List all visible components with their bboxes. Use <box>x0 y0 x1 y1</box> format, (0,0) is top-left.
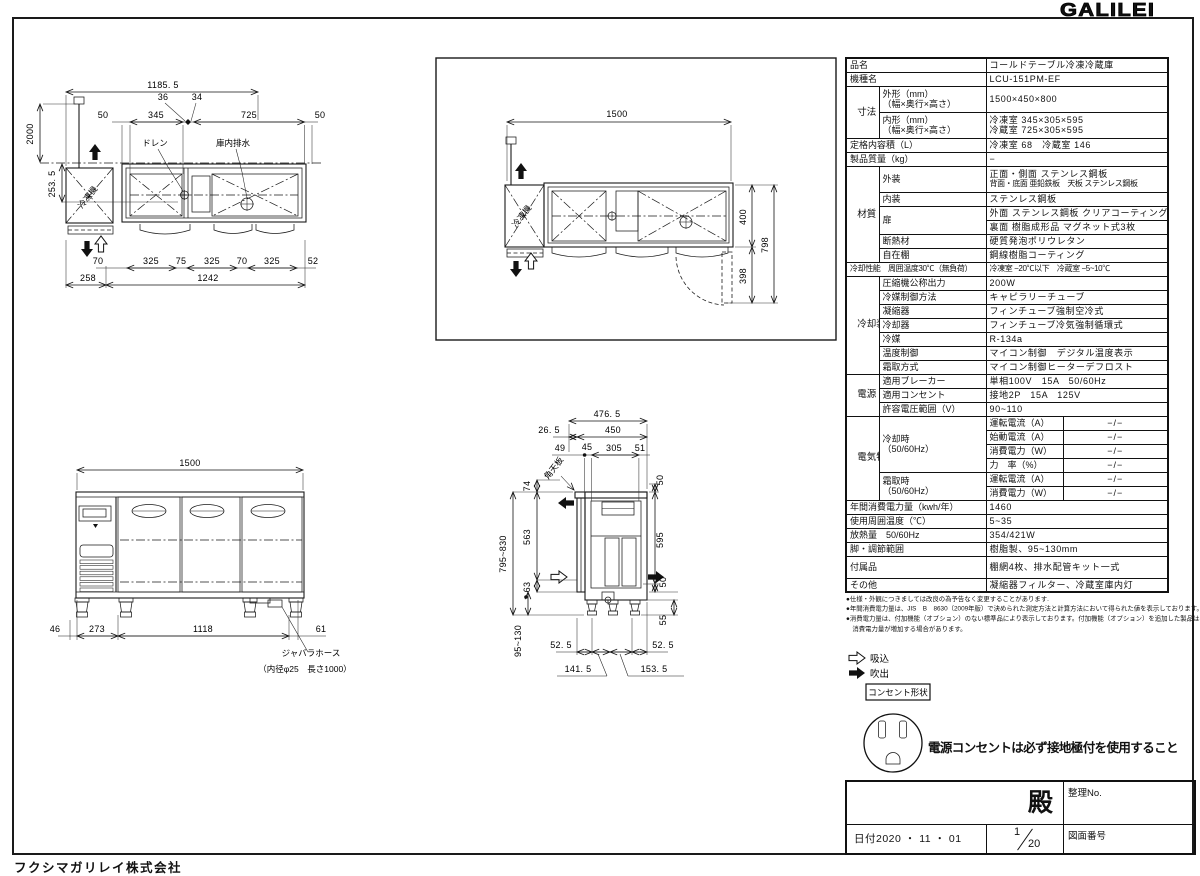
power-outlet-diagram <box>864 714 922 772</box>
spec-label: 冷却器 <box>879 318 986 332</box>
dim-label: 325 <box>204 256 220 266</box>
dim-label: 49 <box>555 443 566 453</box>
dim-label: 34 <box>192 92 203 102</box>
dim-label: 595 <box>655 532 665 548</box>
dim-label: 61 <box>316 624 327 634</box>
spec-label: 許容電圧範囲（V） <box>879 402 986 416</box>
spec-value: R-134a <box>986 332 1168 346</box>
dim-label: 50 <box>658 577 668 588</box>
spec-value: 棚網4枚、排水配管キット一式 <box>986 556 1168 578</box>
dim-label: 36 <box>158 92 169 102</box>
dim-label: 798 <box>760 237 770 253</box>
blowout-arrow-icon <box>81 241 93 257</box>
top-view-drawing: 冷凍機 1500 400 398 798 <box>436 58 836 340</box>
spec-label: 使用周囲温度（℃） <box>846 514 986 528</box>
dim-label: 45 <box>582 442 593 452</box>
intake-label: 吸込 <box>870 654 890 665</box>
spec-value: −/− <box>1063 444 1168 458</box>
title-block: 殿 整理No. 日付2020 ・ 11 ・ 01 1 20 図面番号 <box>845 780 1196 855</box>
dim-label: 153. 5 <box>641 664 668 674</box>
freezer-unit-label: 冷凍機 <box>76 184 100 211</box>
blowout-arrow-icon <box>89 144 101 160</box>
spec-value: コールドテーブル冷凍冷蔵庫 <box>986 58 1168 72</box>
dim-label: 52 <box>308 256 319 266</box>
spec-value: 単相100V 15A 50/60Hz <box>986 374 1168 388</box>
dim-label: 258 <box>80 273 96 283</box>
spec-label: 霜取時（50/60Hz） <box>879 472 986 500</box>
spec-value: −/− <box>1063 486 1168 500</box>
blowout-label: 吹出 <box>870 668 889 680</box>
dim-label: 52. 5 <box>652 640 674 650</box>
spec-label: 付属品 <box>846 556 986 578</box>
blowout-arrow-icon <box>515 163 527 179</box>
dim-label: 1185. 5 <box>147 80 178 90</box>
spec-label: 適用コンセント <box>879 388 986 402</box>
dim-label: 345 <box>148 110 164 120</box>
dim-label: 398 <box>738 268 748 284</box>
spec-label: 扉 <box>879 206 986 234</box>
spec-value: 5~35 <box>986 514 1168 528</box>
spec-table: 品名コールドテーブル冷凍冷蔵庫 機種名LCU-151PM-EF 寸法 外形（mm… <box>845 57 1169 593</box>
spec-label: 機種名 <box>846 72 986 86</box>
spec-value: −/− <box>1063 472 1168 486</box>
dim-label: 305 <box>606 443 622 453</box>
spec-label: 冷媒制御方法 <box>879 290 986 304</box>
spec-label: 定格内容積（L） <box>846 138 986 152</box>
hose-spec-label: （内径φ25 長さ1000） <box>258 664 351 674</box>
spec-value: 200W <box>986 276 1168 290</box>
spec-sublabel: 消費電力（W） <box>986 444 1063 458</box>
spec-value: キャピラリーチューブ <box>986 290 1168 304</box>
spec-value: −/− <box>1063 458 1168 472</box>
spec-value: −/− <box>1063 416 1168 430</box>
dim-label: 725 <box>241 110 257 120</box>
dim-label: 70 <box>93 256 104 266</box>
spec-value: 凝縮器フィルター、冷蔵室庫内灯 <box>986 578 1168 592</box>
note-line: 消費電力量が増加する場合があります。 <box>846 624 1196 634</box>
model-number: LCU-151PM-EF <box>986 72 1168 86</box>
blowout-arrow-icon <box>510 261 522 277</box>
drain-label: ドレン <box>142 138 168 148</box>
blowout-arrow-icon <box>558 497 574 509</box>
date-cell: 日付2020 ・ 11 ・ 01 <box>847 825 987 854</box>
intake-arrow-icon <box>849 652 865 664</box>
dim-label: 1118 <box>193 624 213 634</box>
spec-value: 冷凍室 −20℃以下 冷蔵室 −5~10℃ <box>986 262 1168 276</box>
spec-label: 冷却時（50/60Hz） <box>879 416 986 472</box>
dim-label: 46 <box>50 624 61 634</box>
spec-value: マイコン制御 デジタル温度表示 <box>986 346 1168 360</box>
spec-value: 接地2P 15A 125V <box>986 388 1168 402</box>
blowout-arrow-icon <box>849 667 865 679</box>
spec-value: フィンチューブ強制空冷式 <box>986 304 1168 318</box>
intake-arrow-icon <box>551 571 567 583</box>
dim-label: 70 <box>237 256 248 266</box>
reference-number-cell: 整理No. <box>1064 782 1194 825</box>
spec-label: 断熱材 <box>879 234 986 248</box>
spec-value: 裏面 樹脂成形品 マグネット式3枚 <box>986 220 1168 234</box>
note-line: ●仕様・外観につきましては改良の為予告なく変更することがあります. <box>846 594 1196 604</box>
dim-label: 63 <box>522 582 532 593</box>
spec-value: 樹脂製、95~130mm <box>986 542 1168 556</box>
spec-value: 90~110 <box>986 402 1168 416</box>
dim-label: 75 <box>176 256 187 266</box>
spec-value: ステンレス鋼板 <box>986 192 1168 206</box>
spec-value: 硬質発泡ポリウレタン <box>986 234 1168 248</box>
spec-value: 354/421W <box>986 528 1168 542</box>
spec-value: 冷凍室 345×305×595冷蔵室 725×305×595 <box>986 112 1168 138</box>
spec-sublabel: 力 率（%） <box>986 458 1063 472</box>
spec-sublabel: 消費電力（W） <box>986 486 1063 500</box>
plan-view-drawing: 冷凍機 ドレン 庫内排水 1185. 5 36 34 <box>25 80 325 288</box>
dim-label: 74 <box>522 481 532 492</box>
spec-value: 鋼線樹脂コーティング <box>986 248 1168 262</box>
note-line: ●年間消費電力量は、JIS B 8630（2009年版）で決められた測定方法と計… <box>846 604 1196 614</box>
side-legs <box>587 600 640 615</box>
sheet-total: 20 <box>1028 838 1040 850</box>
spec-label: 適用ブレーカー <box>879 374 986 388</box>
spec-label: その他 <box>846 578 986 592</box>
spec-value: −/− <box>1063 430 1168 444</box>
spec-label: 自在棚 <box>879 248 986 262</box>
cabinet-drain-label: 庫内排水 <box>216 138 251 148</box>
dim-label: 1500 <box>606 109 627 119</box>
dim-label: 273 <box>89 624 105 634</box>
dim-label: 1242 <box>197 273 218 283</box>
spec-label: 脚・調節範囲 <box>846 542 986 556</box>
spec-label: 放熱量 50/60Hz <box>846 528 986 542</box>
dim-label: 50 <box>315 110 326 120</box>
spec-label: 内形（mm）（幅×奥行×高さ） <box>879 112 986 138</box>
airflow-legend: 吸込 吹出 コンセント形状 <box>849 652 930 700</box>
dim-label: 52. 5 <box>550 640 572 650</box>
spec-value: 正面・側面 ステンレス鋼板背面・底面 亜鉛鉄板 天板 ステンレス鋼板 <box>986 166 1168 192</box>
spec-label: 年間消費電力量（kwh/年） <box>846 500 986 514</box>
freezer-unit-label: 冷凍機 <box>510 203 534 230</box>
spec-label: 品名 <box>846 58 986 72</box>
spec-label: 冷媒 <box>879 332 986 346</box>
dim-label: 55 <box>658 615 668 626</box>
spec-label: 外装 <box>879 166 986 192</box>
addressee-cell: 殿 <box>847 782 1064 825</box>
dim-label: 95~130 <box>513 625 523 657</box>
note-line: ●消費電力量は、付加機能（オプション）のない標準品により表示しております。付加機… <box>846 614 1196 624</box>
spec-value: マイコン制御ヒーターデフロスト <box>986 360 1168 374</box>
spec-value: 1500×450×800 <box>986 86 1168 112</box>
spec-category: 材質 <box>846 166 879 262</box>
outlet-shape-label: コンセント形状 <box>868 688 928 698</box>
spec-sublabel: 始動電流（A） <box>986 430 1063 444</box>
side-elevation-drawing: 角天板 476. 5 26. 5 450 49 45 305 51 795~83… <box>498 409 684 676</box>
dim-label: 795~830 <box>498 535 508 572</box>
front-legs <box>75 598 303 617</box>
spec-label: 温度制御 <box>879 346 986 360</box>
front-elevation-drawing: 1500 ジャバラホース （内径φ25 長さ1000） <box>50 458 352 674</box>
dim-label: 400 <box>738 209 748 225</box>
spec-sublabel: 運転電流（A） <box>986 416 1063 430</box>
sheet-number-cell: 1 20 <box>987 825 1064 854</box>
spec-value: − <box>986 152 1168 166</box>
dim-label: 50 <box>655 475 665 486</box>
dim-label: 2000 <box>25 123 35 144</box>
dim-label: 253. 5 <box>47 171 57 198</box>
spec-category: 電気特性 <box>846 416 879 500</box>
spec-label: 冷却性能 周囲温度30℃（無負荷） <box>846 262 986 276</box>
spec-category: 冷却装置 <box>846 276 879 374</box>
spec-category: 電源 <box>846 374 879 416</box>
spec-category: 寸法 <box>846 86 879 138</box>
dim-label: 325 <box>264 256 280 266</box>
dim-label: 476. 5 <box>594 409 621 419</box>
spec-value: 1460 <box>986 500 1168 514</box>
intake-arrow-icon <box>95 236 107 252</box>
dim-label: 450 <box>605 425 621 435</box>
spec-label: 外形（mm）（幅×奥行×高さ） <box>879 86 986 112</box>
spec-label: 製品質量（kg） <box>846 152 986 166</box>
spec-label: 凝縮器 <box>879 304 986 318</box>
sheet-number: 1 <box>1014 826 1020 838</box>
dim-label: 51 <box>635 443 646 453</box>
spec-sublabel: 運転電流（A） <box>986 472 1063 486</box>
dim-label: 1500 <box>179 458 200 468</box>
drawing-number-cell: 図面番号 <box>1064 825 1194 854</box>
spec-label: 圧縮機公称出力 <box>879 276 986 290</box>
dim-label: 325 <box>143 256 159 266</box>
spec-value: フィンチューブ冷気強制循環式 <box>986 318 1168 332</box>
dim-label: 26. 5 <box>538 425 560 435</box>
dim-label: 141. 5 <box>565 664 592 674</box>
spec-label: 内装 <box>879 192 986 206</box>
dim-label: 50 <box>98 110 109 120</box>
hose-label: ジャバラホース <box>282 648 341 658</box>
grounding-warning-text: 電源コンセントは必ず接地極付を使用すること <box>928 737 1178 756</box>
spec-value: 冷凍室 68 冷蔵室 146 <box>986 138 1168 152</box>
footnotes: ●仕様・外観につきましては改良の為予告なく変更することがあります. ●年間消費電… <box>846 594 1196 634</box>
intake-arrow-icon <box>525 253 537 269</box>
spec-label: 霜取方式 <box>879 360 986 374</box>
dim-label: 563 <box>522 529 532 545</box>
spec-value: 外面 ステンレス鋼板 クリアコーティング <box>986 206 1168 220</box>
